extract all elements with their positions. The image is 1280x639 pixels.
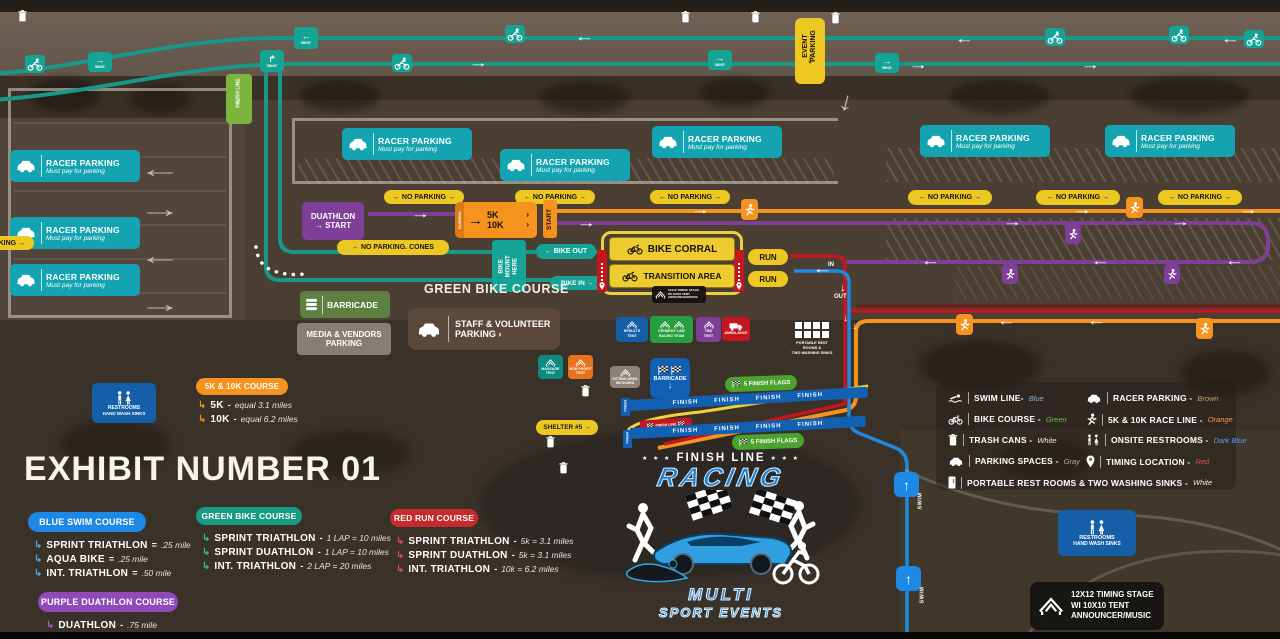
cyclist-badge <box>1244 30 1264 48</box>
cyclist-badge <box>1169 26 1189 44</box>
timing-stage-line3: ANNOUNCER/MUSIC <box>1071 611 1154 621</box>
parking-arrow-right-icon: → <box>138 198 181 222</box>
timing-mat-strip <box>734 250 744 292</box>
legend-label: TIMING LOCATION - <box>1106 457 1190 467</box>
car-icon <box>950 457 962 465</box>
course-item-name: SPRINT DUATHLON <box>214 547 313 558</box>
bike-mount-label2: MOUNT <box>506 255 513 277</box>
flow-arrow-right-icon: → <box>1081 58 1101 71</box>
legend-red-items: ↳SPRINT TRIATHLON-5k = 3.1 miles ↳SPRINT… <box>396 536 573 578</box>
shelter-5-badge: SHELTER #5 → <box>536 420 598 435</box>
logo-sport-events-text: SPORT EVENTS <box>659 605 783 621</box>
porta-potty-grid <box>795 322 844 338</box>
hook-arrow-icon: ↳ <box>198 414 206 425</box>
trash-icon <box>546 436 554 447</box>
flow-arrow-left-icon: ← <box>997 314 1017 327</box>
course-item-name: 10K <box>210 414 229 425</box>
flow-arrow-left-icon: ← <box>921 254 941 267</box>
running-strip: RUNNING <box>455 202 464 238</box>
bike-badge-label: BIKE <box>715 63 725 67</box>
legend-purple-duathlon-pill: PURPLE DUATHLON COURSE <box>38 592 178 612</box>
bike-direction-badge: →BIKE <box>88 52 112 72</box>
divider <box>322 296 323 314</box>
legend-label: PARKING SPACES - <box>975 456 1059 466</box>
flow-arrow-right-icon: → <box>1239 203 1259 216</box>
cyclist-icon <box>28 58 42 70</box>
course-item-name: DUATHLON <box>58 620 116 631</box>
legend-color-word: Blue <box>1029 394 1044 403</box>
flow-arrow-right-icon: → <box>469 56 489 69</box>
media-vendors-label2: PARKING <box>326 339 362 348</box>
legend-color-word: White <box>1193 478 1212 487</box>
legend-color-word: Green <box>1046 415 1067 424</box>
legend-green-title: GREEN BIKE COURSE <box>201 511 296 521</box>
car-icon <box>928 136 945 147</box>
media-vendors-parking-sign: MEDIA & VENDORS PARKING <box>297 323 391 355</box>
course-item-name: AQUA BIKE <box>46 554 104 565</box>
logo-racing-text: RACING <box>655 464 787 490</box>
legend-row-racer-parking: RACER PARKING -Brown <box>1086 392 1219 404</box>
event-parking-label2: PARKING <box>810 30 818 62</box>
run-badge: RUN <box>748 271 788 287</box>
cyclist-badge <box>505 25 525 43</box>
bike-direction-badge: →BIKE <box>875 53 899 73</box>
course-item-value: .25 mile <box>161 540 191 550</box>
run-label: RUN <box>759 253 776 262</box>
no-parking-badge: ← NO PARKING → <box>0 236 34 250</box>
hook-arrow-icon: ↳ <box>202 533 210 544</box>
course-item-name: SPRINT TRIATHLON <box>46 540 147 551</box>
legend-green-bike-pill: GREEN BIKE COURSE <box>196 507 302 525</box>
tbd-tent-sign: TBDTENT <box>696 317 721 342</box>
logo-stars-icon: ★ ★ ★ <box>771 455 800 462</box>
portable-restrooms-marker: PORTABLE REST ROOMS & TWO WASHING SINKS <box>795 322 844 356</box>
non-profit-tent-label2: TENT <box>569 371 591 375</box>
running-label: RUNNING <box>458 211 462 229</box>
massage-tent-label2: TENT <box>541 371 559 375</box>
course-item-value: 2 LAP = 20 miles <box>307 561 371 571</box>
parking-arrow-left-icon: ← <box>138 245 181 269</box>
course-item-value: 1 LAP = 10 miles <box>327 533 391 543</box>
tent-icon <box>576 360 585 367</box>
tent-icon <box>1040 599 1062 615</box>
trash-icon <box>831 12 839 23</box>
divider <box>531 154 532 176</box>
trash-icon <box>559 462 567 473</box>
course-item-sep: - <box>494 564 497 574</box>
barricade-label: BARRICADE <box>327 300 378 310</box>
course-item-value: 10k = 6.2 miles <box>501 564 558 574</box>
staff-parking-label2: PARKING › <box>455 329 550 339</box>
course-item-value: .75 mile <box>127 620 157 630</box>
results-tent-sign: RESULTSTENT <box>616 317 648 342</box>
legend-5k-10k-course-pill: 5K & 10K COURSE <box>196 378 288 395</box>
flow-arrow-down-icon: ↓ <box>840 283 846 294</box>
divider <box>41 222 42 244</box>
legend-color-word: Gray <box>1064 457 1080 466</box>
bike-mount-label1: BIKE <box>499 255 506 277</box>
flow-arrow-left-icon: ← <box>575 30 595 43</box>
logo-graphic <box>621 490 821 586</box>
cyclist-badge <box>392 54 412 72</box>
arrow-right-icon: → <box>468 212 483 229</box>
non-profit-tent-sign: NON PROFITTENT <box>568 355 593 379</box>
finish-line-sign: FINISH LINE ↓ <box>226 74 252 124</box>
event-parking-label1: EVENT <box>802 30 810 62</box>
bike-mount-label3: HERE <box>512 255 519 277</box>
checkered-flag-icon <box>739 439 747 446</box>
legend-blue-swim-pill: BLUE SWIM COURSE <box>28 512 146 532</box>
racer-parking-subtitle: Must pay for parking <box>378 146 452 153</box>
course-item-value: 5k = 3.1 miles <box>519 550 572 560</box>
course-item-name: SPRINT TRIATHLON <box>214 533 315 544</box>
trash-icon <box>18 10 26 21</box>
racer-parking-sign: RACER PARKINGMust pay for parking <box>1105 125 1235 157</box>
legend-color-word: Red <box>1195 457 1209 466</box>
legend-purple-title: PURPLE DUATHLON COURSE <box>41 597 175 607</box>
legend-label: TRASH CANS - <box>969 435 1032 445</box>
runner-icon <box>1007 269 1014 279</box>
swim-label: SWIM <box>917 493 923 510</box>
flow-arrow-right-icon: → <box>909 58 929 71</box>
bike-badge-label: BIKE <box>95 65 105 69</box>
label-10k: 10K <box>487 220 504 230</box>
flow-arrow-right-icon: → <box>1073 203 1093 216</box>
cyclist-icon <box>1172 29 1186 41</box>
course-item-sep: = <box>109 554 114 564</box>
course-item-name: INT. TRIATHLON <box>46 568 128 579</box>
tent-icon <box>620 370 629 377</box>
divider <box>1136 130 1137 152</box>
tbd-tent-label2: TENT <box>704 334 713 338</box>
flow-arrow-down-icon: ↓ <box>843 314 848 324</box>
course-item-value: .25 mile <box>118 554 148 564</box>
no-parking-badge: ← NO PARKING → <box>1158 190 1242 205</box>
hook-arrow-icon: ↳ <box>34 540 42 551</box>
legend-5k-10k-title: 5K & 10K COURSE <box>205 382 280 391</box>
swim-direction-badge: ↑ <box>894 472 919 497</box>
restrooms-sign: RESTROOMS HAND WASH SINKS <box>92 383 156 423</box>
duathlon-start-sign: DUATHLON → START <box>302 202 364 240</box>
racer-parking-sign: RACER PARKINGMust pay for parking <box>652 126 782 158</box>
course-item-sep: - <box>120 620 123 630</box>
bike-out-badge: ← BIKE OUT <box>536 244 596 259</box>
divider <box>373 133 374 155</box>
cyclist-badge <box>1045 28 1065 46</box>
tent-icon <box>546 360 555 367</box>
course-item-sep: = <box>152 540 157 550</box>
ambulance-label: AMBULANCE <box>724 331 747 335</box>
timing-text-marks <box>738 263 740 281</box>
tent-icon <box>627 322 637 329</box>
hook-arrow-icon: ↳ <box>396 564 404 575</box>
finish-flags-label: 5 FINISH FLAGS <box>751 437 798 445</box>
tent-icon <box>704 322 714 329</box>
course-item-name: SPRINT DUATHLON <box>408 550 507 561</box>
flow-arrow-right-icon: → <box>411 207 431 220</box>
legend-row-portable-restrooms: PORTABLE REST ROOMS & TWO WASHING SINKS … <box>948 476 1212 489</box>
arrow-right-icon: › <box>526 220 529 230</box>
course-item-sep: - <box>318 547 321 557</box>
flow-arrow-right-icon: → <box>1003 215 1023 228</box>
car-icon <box>1113 136 1130 147</box>
racer-parking-subtitle: Must pay for parking <box>46 168 120 175</box>
course-item-name: SPRINT TRIATHLON <box>408 536 509 547</box>
racer-parking-subtitle: Must pay for parking <box>46 282 120 289</box>
timing-pin-icon <box>736 282 741 290</box>
runner-icon <box>746 203 754 214</box>
racer-parking-sign: RACER PARKINGMust pay for parking <box>342 128 472 160</box>
legend-row-onsite-restrooms: ONSITE RESTROOMS -Dark Blue <box>1086 434 1247 446</box>
bike-direction-badge: ↱BIKE <box>260 50 284 72</box>
restroom-figures-icon <box>118 391 131 404</box>
finish-line-racing-logo: ★ ★ ★ FINISH LINE ★ ★ ★ RACING MULTI SPO… <box>616 452 826 638</box>
duathlon-start-label2: → START <box>315 221 351 230</box>
hook-arrow-icon: ↳ <box>34 568 42 579</box>
finish-tag-label: FINISH <box>626 435 630 444</box>
porta-potty-icon <box>949 477 956 489</box>
restrooms-label2: HAND WASH SINKS <box>103 411 146 416</box>
arrow-up-icon: ↑ <box>905 571 912 587</box>
trash-icon <box>949 434 957 446</box>
transition-area-sign: TRANSITION AREA <box>609 264 735 288</box>
no-parking-label: ← NO PARKING → <box>0 240 25 247</box>
course-item-sep: - <box>514 536 517 546</box>
staff-volunteer-parking-sign: STAFF & VOLUNTEERPARKING › <box>408 308 560 350</box>
restroom-figures-icon <box>1088 434 1098 445</box>
swim-label-wrap: SWIM <box>914 592 931 598</box>
car-icon <box>419 323 439 336</box>
run-start-5k-10k-box: RUNNING → 5K› 10K› <box>455 202 537 238</box>
results-tent-label1: RESULTS <box>624 329 641 333</box>
bike-badge-label: BIKE <box>301 41 311 45</box>
course-item-sep: - <box>512 550 515 560</box>
racer-parking-subtitle: Must pay for parking <box>688 144 762 151</box>
legend-blue-title: BLUE SWIM COURSE <box>39 517 135 527</box>
tbd-tent-label1: TBD <box>704 329 713 333</box>
bike-direction-badge: ←BIKE <box>294 27 318 49</box>
course-item-value: 5k = 3.1 miles <box>521 536 574 546</box>
bike-icon <box>628 245 642 254</box>
flow-arrow-left-icon: ← <box>1225 254 1245 267</box>
course-item-name: INT. TRIATHLON <box>408 564 490 575</box>
bike-corral-label: BIKE CORRAL <box>648 244 717 255</box>
finish-tag-label: FINISH <box>624 403 628 412</box>
runner-icon <box>1131 201 1139 212</box>
racer-parking-title: RACER PARKING <box>46 225 120 235</box>
restroom-figures-icon <box>1091 520 1105 534</box>
timing-stage-marker: 12X12 TIMING STAGE WI 10X10 TENT ANNOUNC… <box>652 286 706 303</box>
bike-corral-sign: BIKE CORRAL <box>609 237 735 261</box>
logo-stars-icon: ★ ★ ★ <box>642 455 671 462</box>
hook-arrow-icon: ↳ <box>202 547 210 558</box>
swim-label: SWIM <box>919 587 925 604</box>
swim-label-wrap: SWIM <box>912 498 929 504</box>
runner-badge-orange <box>956 314 973 335</box>
legend-row-5k-10k-race-line: 5K & 10K RACE LINE -Orange <box>1086 413 1233 426</box>
legend-red-run-pill: RED RUN COURSE <box>390 509 478 527</box>
logo-multi-text: MULTI <box>688 586 754 605</box>
tent-icon <box>674 322 684 329</box>
legend-red-title: RED RUN COURSE <box>394 513 474 523</box>
course-item-value: .50 mile <box>141 568 171 578</box>
timing-pin-icon <box>1087 455 1095 467</box>
swimmer-icon <box>949 394 962 402</box>
portable-restrooms-caption: PORTABLE REST ROOMS & TWO WASHING SINKS <box>780 341 844 356</box>
runner-icon <box>1201 322 1209 333</box>
racer-parking-title: RACER PARKING <box>956 133 1030 143</box>
runner-badge-purple <box>1002 264 1018 284</box>
bike-out-label: ← BIKE OUT <box>545 248 587 255</box>
racer-parking-subtitle: Must pay for parking <box>46 235 120 242</box>
flow-arrow-left-icon: ← <box>1087 314 1107 327</box>
legend-row-trash-cans: TRASH CANS -White <box>948 434 1057 446</box>
legend-color-word: Orange <box>1208 415 1233 424</box>
course-item-value: equal 6.2 miles <box>241 414 298 424</box>
ambulance-icon <box>729 324 742 332</box>
flow-arrow-right-icon: → <box>577 216 597 229</box>
cyclist-icon <box>508 28 522 40</box>
event-parking-sign: EVENTPARKING ↓ <box>795 18 825 84</box>
no-parking-cones-badge: ← NO PARKING. CONES <box>337 240 449 255</box>
legend-row-parking-spaces: PARKING SPACES -Gray <box>948 455 1080 467</box>
no-parking-label: ← NO PARKING → <box>393 194 455 201</box>
divider <box>41 269 42 291</box>
car-icon <box>1088 394 1100 402</box>
trash-icon <box>751 11 759 22</box>
run-badge: RUN <box>748 249 788 265</box>
racer-parking-sign: RACER PARKINGMust pay for parking <box>10 264 140 296</box>
kennedy-tent-label1: KENNEDY LAW <box>658 329 685 333</box>
sitting-area-label2: W/CHAIRS <box>612 381 637 385</box>
course-item-sep: - <box>320 533 323 543</box>
cyclist-badge <box>25 55 45 73</box>
no-parking-label: ← NO PARKING → <box>1047 194 1109 201</box>
legend-color-word: Dark Blue <box>1214 436 1247 445</box>
barricade-flags-sign: BARRICADE ↓ <box>650 358 690 398</box>
timing-stage-sign: 12X12 TIMING STAGE WI 10X10 TENT ANNOUNC… <box>1030 582 1164 630</box>
flow-arrow-left-icon: ← <box>955 32 975 45</box>
divider <box>951 130 952 152</box>
hook-arrow-icon: ↳ <box>198 400 206 411</box>
course-item-sep: = <box>132 568 137 578</box>
racer-parking-sign: RACER PARKINGMust pay for parking <box>10 150 140 182</box>
course-item-sep: - <box>228 400 231 410</box>
divider <box>41 155 42 177</box>
racer-parking-sign: RACER PARKINGMust pay for parking <box>920 125 1050 157</box>
course-item-value: equal 3.1 miles <box>235 400 292 410</box>
checkered-flag-icon <box>658 366 667 375</box>
racer-parking-title: RACER PARKING <box>536 157 610 167</box>
no-parking-label: ← NO PARKING → <box>1169 194 1231 201</box>
cyclist-icon <box>395 57 409 69</box>
course-item-name: 5K <box>210 400 223 411</box>
runner-badge-purple <box>1065 224 1081 244</box>
flow-arrow-left-icon: ← <box>1221 32 1241 45</box>
flow-arrow-left-icon: ← <box>1091 254 1111 267</box>
no-parking-label: ← NO PARKING → <box>919 194 981 201</box>
hook-arrow-icon: ↳ <box>396 550 404 561</box>
course-item-name: INT. TRIATHLON <box>214 561 296 572</box>
tent-icon <box>660 322 670 329</box>
staff-parking-label1: STAFF & VOLUNTEER <box>455 319 550 329</box>
no-parking-cones-label: ← NO PARKING. CONES <box>352 244 434 251</box>
car-icon <box>350 139 367 150</box>
legend-green-items: ↳SPRINT TRIATHLON-1 LAP = 10 miles ↳SPRI… <box>202 533 391 575</box>
media-vendors-label1: MEDIA & VENDORS <box>306 330 381 339</box>
runner-badge-purple <box>1164 264 1180 284</box>
finish-flags-badge: 5 FINISH FLAGS <box>732 433 804 451</box>
legend-label: BIKE COURSE - <box>974 414 1041 424</box>
start-label: START <box>547 208 554 229</box>
timing-stage-line1: 12X12 TIMING STAGE <box>1071 590 1154 600</box>
finish-flags-badge: 5 FINISH FLAGS <box>725 375 797 393</box>
results-tent-label2: TENT <box>624 334 641 338</box>
legend-label: RACER PARKING - <box>1113 393 1192 403</box>
legend-label: 5K & 10K RACE LINE - <box>1108 415 1203 425</box>
racer-parking-title: RACER PARKING <box>378 136 452 146</box>
legend-row-swim-line: SWIM LINE-Blue <box>948 392 1044 404</box>
racer-parking-title: RACER PARKING <box>1141 133 1215 143</box>
no-parking-badge: ← NO PARKING → <box>908 190 992 205</box>
legend-blue-items: ↳SPRINT TRIATHLON=.25 mile ↳AQUA BIKE=.2… <box>34 540 191 582</box>
course-item-sep: - <box>300 561 303 571</box>
finish-line-label2: LINE <box>236 78 242 89</box>
runner-icon <box>961 318 969 329</box>
massage-tent-sign: MASSAGETENT <box>538 355 563 379</box>
kennedy-tent-label2: RACING TEAM <box>658 334 685 338</box>
kennedy-law-racing-tent-sign: KENNEDY LAWRACING TEAM <box>650 316 693 343</box>
runner-icon <box>1088 413 1096 424</box>
arrow-right-icon: › <box>526 210 529 220</box>
run-label: RUN <box>759 275 776 284</box>
car-icon <box>508 160 525 171</box>
course-item-sep: - <box>234 414 237 424</box>
runner-badge-orange <box>1126 197 1143 218</box>
divider <box>683 131 684 153</box>
car-icon <box>18 161 35 172</box>
no-parking-badge: ← NO PARKING → <box>384 190 464 204</box>
course-item-value: 1 LAP = 10 miles <box>325 547 389 557</box>
finish-flags-label: 5 FINISH FLAGS <box>744 379 791 387</box>
bottom-bar <box>0 632 1280 639</box>
legend-label: SWIM LINE- <box>974 393 1024 403</box>
tent-icon <box>656 291 665 298</box>
flow-arrow-down-icon: ↓ <box>852 322 857 332</box>
checkered-flag-icon <box>732 381 740 388</box>
barricade-sign: BARRICADE <box>300 291 390 318</box>
runner-badge-orange <box>1196 318 1213 339</box>
legend-row-bike-course: BIKE COURSE -Green <box>948 413 1067 425</box>
cyclist-icon <box>1247 33 1261 45</box>
bike-direction-badge: →BIKE <box>708 50 732 70</box>
bike-badge-label: BIKE <box>882 66 892 70</box>
arrow-up-icon: ↑ <box>903 477 910 493</box>
flow-arrow-right-icon: → <box>1171 215 1191 228</box>
timing-stage-line2: WI 10X10 TENT <box>1071 601 1154 611</box>
racer-parking-subtitle: Must pay for parking <box>956 143 1030 150</box>
legend-color-word: White <box>1037 436 1056 445</box>
timing-pin-icon <box>599 282 604 290</box>
timing-stage-line3: ANNOUNCER/MUSIC <box>668 296 699 300</box>
no-parking-label: ← NO PARKING → <box>659 194 721 201</box>
car-icon <box>18 275 35 286</box>
parking-arrow-left-icon: ← <box>138 158 181 182</box>
legend-row-timing-location: TIMING LOCATION -Red <box>1086 455 1209 468</box>
barricade-icon <box>306 299 317 310</box>
bike-badge-label: BIKE <box>267 64 277 68</box>
hook-arrow-icon: ↳ <box>46 620 54 631</box>
